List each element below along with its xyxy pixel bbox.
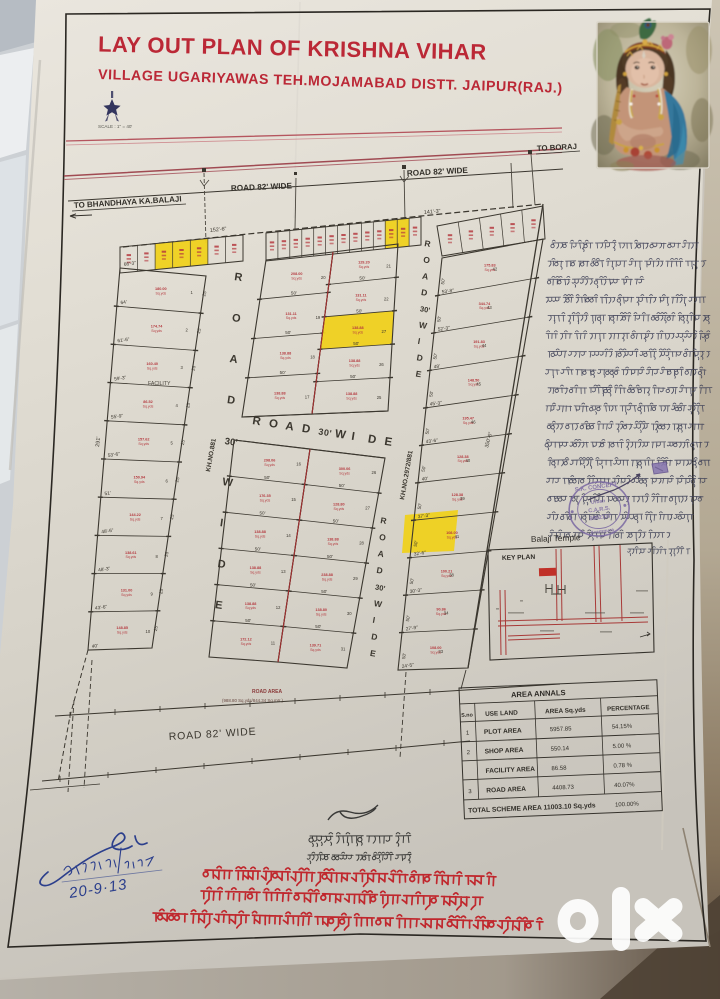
svg-text:34: 34 bbox=[444, 611, 449, 616]
svg-text:Sq.yds: Sq.yds bbox=[316, 613, 327, 617]
svg-text:11: 11 bbox=[271, 641, 276, 646]
svg-text:Sq.yds: Sq.yds bbox=[147, 367, 158, 371]
svg-text:50': 50' bbox=[436, 315, 442, 322]
svg-text:Sq.yds: Sq.yds bbox=[138, 442, 149, 446]
svg-text:86.58: 86.58 bbox=[551, 766, 567, 773]
svg-text:USE LAND: USE LAND bbox=[485, 710, 518, 718]
svg-text:50': 50' bbox=[417, 503, 423, 510]
svg-text:W: W bbox=[334, 428, 347, 442]
svg-text:50': 50' bbox=[280, 370, 286, 375]
svg-text:138.88: 138.88 bbox=[349, 359, 361, 363]
svg-text:FACILITY: FACILITY bbox=[148, 381, 171, 387]
svg-text:208.00: 208.00 bbox=[291, 272, 303, 276]
svg-text:138.88: 138.88 bbox=[274, 392, 286, 396]
svg-text:30': 30' bbox=[318, 426, 333, 438]
svg-text:21: 21 bbox=[386, 263, 391, 268]
svg-text:50': 50' bbox=[440, 278, 446, 285]
svg-text:18: 18 bbox=[310, 355, 315, 360]
svg-text:86.52: 86.52 bbox=[143, 400, 153, 404]
svg-text:138.88: 138.88 bbox=[346, 392, 358, 396]
svg-text:144.22: 144.22 bbox=[129, 513, 141, 517]
svg-text:54.15%: 54.15% bbox=[612, 724, 633, 731]
svg-text:50': 50' bbox=[264, 475, 270, 480]
svg-text:38: 38 bbox=[449, 572, 454, 577]
svg-text:180.00: 180.00 bbox=[155, 287, 167, 291]
svg-text:A: A bbox=[285, 420, 296, 433]
svg-text:Balaji Temple: Balaji Temple bbox=[531, 532, 581, 544]
svg-text:Sq.yds: Sq.yds bbox=[264, 463, 275, 467]
svg-text:44: 44 bbox=[482, 343, 487, 348]
svg-text:50': 50' bbox=[424, 428, 430, 435]
svg-text:160.40: 160.40 bbox=[146, 362, 158, 366]
svg-text:Sq.yds: Sq.yds bbox=[310, 648, 321, 652]
svg-text:138.80: 138.80 bbox=[315, 608, 327, 612]
svg-text:50': 50' bbox=[405, 615, 411, 622]
svg-text:50': 50' bbox=[339, 483, 345, 488]
svg-text:13: 13 bbox=[281, 569, 286, 574]
svg-text:550.14: 550.14 bbox=[551, 746, 570, 753]
svg-text:48': 48' bbox=[433, 364, 440, 371]
svg-text:14: 14 bbox=[286, 533, 291, 538]
svg-text:Sq.yds: Sq.yds bbox=[328, 542, 339, 546]
svg-text:131.11: 131.11 bbox=[355, 293, 366, 297]
svg-text:D: D bbox=[367, 433, 378, 446]
svg-text:39: 39 bbox=[460, 496, 465, 501]
svg-text:SCALE : 1" = 40': SCALE : 1" = 40' bbox=[98, 124, 132, 129]
svg-text:Sq.yds: Sq.yds bbox=[286, 316, 297, 320]
svg-text:40: 40 bbox=[466, 458, 471, 463]
svg-text:174.74: 174.74 bbox=[151, 325, 164, 329]
svg-text:Sq.yds: Sq.yds bbox=[356, 298, 367, 302]
svg-text:30': 30' bbox=[224, 436, 238, 449]
svg-text:50': 50' bbox=[260, 511, 266, 516]
svg-text:Sq.yds: Sq.yds bbox=[255, 535, 266, 539]
svg-text:12: 12 bbox=[276, 605, 281, 610]
svg-text:176.35: 176.35 bbox=[259, 494, 271, 498]
svg-text:KEY PLAN: KEY PLAN bbox=[502, 554, 536, 562]
svg-text:50': 50' bbox=[428, 390, 434, 397]
svg-text:25: 25 bbox=[377, 395, 382, 400]
svg-text:Sq.yds: Sq.yds bbox=[121, 593, 132, 597]
svg-text:138.88: 138.88 bbox=[250, 566, 262, 570]
svg-text:31: 31 bbox=[341, 646, 346, 651]
svg-text:Sq.yds: Sq.yds bbox=[155, 291, 166, 295]
svg-text:50': 50' bbox=[291, 290, 297, 295]
svg-text:40': 40' bbox=[91, 643, 98, 650]
svg-text:42: 42 bbox=[493, 267, 498, 272]
svg-text:131.11: 131.11 bbox=[285, 312, 296, 316]
svg-text:0.78 %: 0.78 % bbox=[613, 763, 633, 770]
svg-text:238.88: 238.88 bbox=[321, 573, 333, 577]
svg-text:26: 26 bbox=[372, 470, 377, 475]
svg-text:ROAD AREA: ROAD AREA bbox=[252, 689, 282, 695]
svg-text:50': 50' bbox=[413, 540, 419, 547]
svg-text:26: 26 bbox=[379, 362, 384, 367]
svg-text:Sq.yds: Sq.yds bbox=[130, 517, 141, 521]
svg-text:298.06: 298.06 bbox=[264, 458, 276, 462]
svg-text:Sq.yds: Sq.yds bbox=[333, 507, 344, 511]
svg-text:138.88: 138.88 bbox=[327, 538, 339, 542]
svg-text:50': 50' bbox=[255, 547, 261, 552]
svg-text:139.71: 139.71 bbox=[310, 643, 322, 647]
svg-text:Sq.yds: Sq.yds bbox=[291, 276, 302, 280]
svg-text:128.80: 128.80 bbox=[333, 502, 345, 506]
svg-text:131.00: 131.00 bbox=[121, 589, 133, 593]
svg-text:45: 45 bbox=[476, 381, 481, 386]
svg-text:30': 30' bbox=[419, 304, 431, 315]
svg-text:20: 20 bbox=[321, 275, 326, 280]
svg-text:50': 50' bbox=[285, 330, 291, 335]
svg-text:50': 50' bbox=[315, 624, 321, 629]
svg-text:46: 46 bbox=[471, 420, 476, 425]
svg-text:50': 50' bbox=[409, 578, 415, 585]
svg-text:50': 50' bbox=[245, 618, 251, 623]
svg-text:50': 50' bbox=[327, 554, 333, 559]
svg-text:Sq.yds: Sq.yds bbox=[125, 555, 136, 559]
svg-text:300.06: 300.06 bbox=[339, 467, 351, 471]
svg-text:D: D bbox=[226, 394, 236, 407]
svg-text:15: 15 bbox=[291, 497, 296, 502]
svg-text:Sq.yds: Sq.yds bbox=[245, 606, 256, 610]
svg-text:Sq.yds: Sq.yds bbox=[143, 404, 154, 408]
svg-text:50': 50' bbox=[401, 653, 407, 660]
svg-text:22: 22 bbox=[384, 296, 389, 301]
svg-text:Sq.yds: Sq.yds bbox=[322, 577, 333, 581]
svg-text:50': 50' bbox=[359, 275, 365, 280]
svg-text:27: 27 bbox=[365, 505, 370, 510]
svg-text:Sq.yds: Sq.yds bbox=[349, 364, 360, 368]
svg-text:Sq.yds: Sq.yds bbox=[241, 642, 252, 646]
svg-text:50': 50' bbox=[356, 308, 362, 313]
svg-text:50': 50' bbox=[350, 374, 356, 379]
svg-text:129.20: 129.20 bbox=[358, 260, 370, 264]
svg-text:30: 30 bbox=[347, 611, 352, 616]
svg-text:5957.85: 5957.85 bbox=[550, 726, 573, 733]
svg-text:17: 17 bbox=[305, 395, 310, 400]
svg-text:138.88: 138.88 bbox=[280, 352, 292, 356]
svg-text:41: 41 bbox=[455, 534, 460, 539]
svg-text:157.62: 157.62 bbox=[138, 438, 150, 442]
svg-text:51': 51' bbox=[104, 490, 111, 497]
svg-text:50': 50' bbox=[421, 465, 427, 472]
svg-text:16: 16 bbox=[296, 461, 301, 466]
svg-text:Sq.yds: Sq.yds bbox=[339, 472, 350, 476]
svg-text:Sq.yds: Sq.yds bbox=[250, 570, 261, 574]
svg-text:28: 28 bbox=[359, 541, 364, 546]
svg-text:43: 43 bbox=[487, 305, 492, 310]
svg-text:D: D bbox=[301, 423, 312, 436]
svg-text:10: 10 bbox=[146, 629, 151, 634]
svg-text:Sq.yds: Sq.yds bbox=[352, 331, 363, 335]
svg-text:50': 50' bbox=[432, 353, 438, 360]
svg-text:5.00 %: 5.00 % bbox=[612, 743, 632, 750]
svg-text:138.88: 138.88 bbox=[254, 530, 266, 534]
svg-text:19: 19 bbox=[316, 315, 321, 320]
svg-text:33: 33 bbox=[438, 649, 443, 654]
svg-text:50': 50' bbox=[321, 589, 327, 594]
svg-text:50': 50' bbox=[333, 519, 339, 524]
svg-text:4408.73: 4408.73 bbox=[552, 785, 575, 792]
svg-text:Sq.yds: Sq.yds bbox=[359, 265, 370, 269]
svg-text:50': 50' bbox=[353, 341, 359, 346]
svg-text:40.07%: 40.07% bbox=[614, 782, 635, 789]
svg-text:Sq.yds: Sq.yds bbox=[260, 499, 271, 503]
svg-text:291': 291' bbox=[95, 436, 102, 447]
svg-text:Sq.yds: Sq.yds bbox=[117, 631, 128, 635]
svg-text:172.12: 172.12 bbox=[240, 638, 252, 642]
svg-text:Sq.yds: Sq.yds bbox=[151, 329, 162, 333]
svg-text:29: 29 bbox=[353, 576, 358, 581]
svg-text:150.94: 150.94 bbox=[133, 475, 146, 479]
svg-text:40': 40' bbox=[421, 476, 428, 483]
svg-text:Sq.yds: Sq.yds bbox=[346, 397, 357, 401]
svg-text:100.00%: 100.00% bbox=[615, 802, 640, 809]
svg-text:138.88: 138.88 bbox=[352, 326, 364, 330]
svg-text:64': 64' bbox=[120, 299, 127, 306]
svg-text:50': 50' bbox=[250, 582, 256, 587]
svg-text:S.no: S.no bbox=[461, 712, 474, 719]
svg-text:148.85: 148.85 bbox=[116, 626, 128, 630]
svg-text:Sq.yds: Sq.yds bbox=[274, 396, 285, 400]
svg-text:27: 27 bbox=[382, 329, 387, 334]
svg-text:Sq.yds: Sq.yds bbox=[280, 356, 291, 360]
svg-text:O: O bbox=[268, 418, 279, 431]
svg-text:Sq.yds: Sq.yds bbox=[134, 480, 145, 484]
svg-text:30': 30' bbox=[374, 583, 386, 594]
